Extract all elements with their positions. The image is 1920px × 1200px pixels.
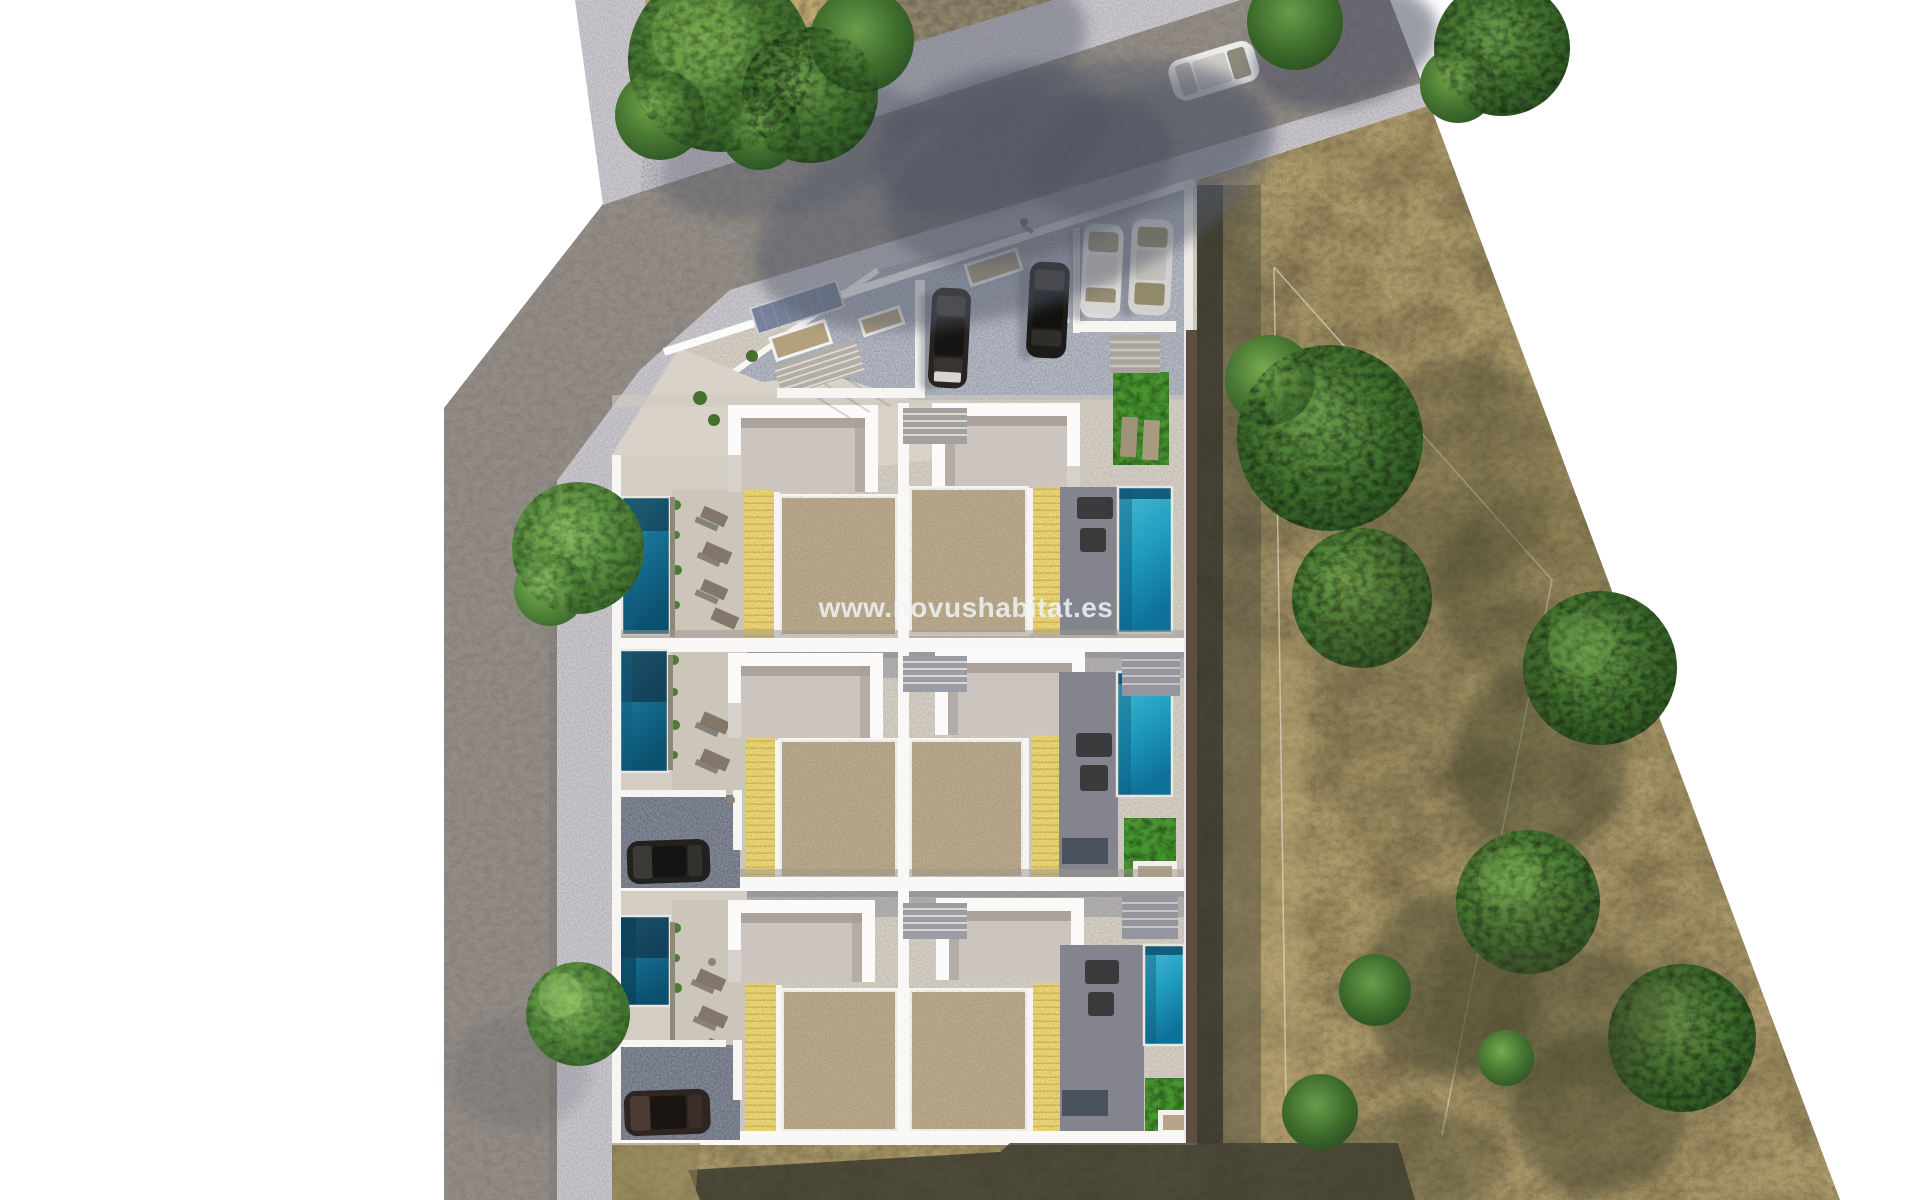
svg-text:www.novushabitat.es: www.novushabitat.es: [818, 592, 1114, 623]
